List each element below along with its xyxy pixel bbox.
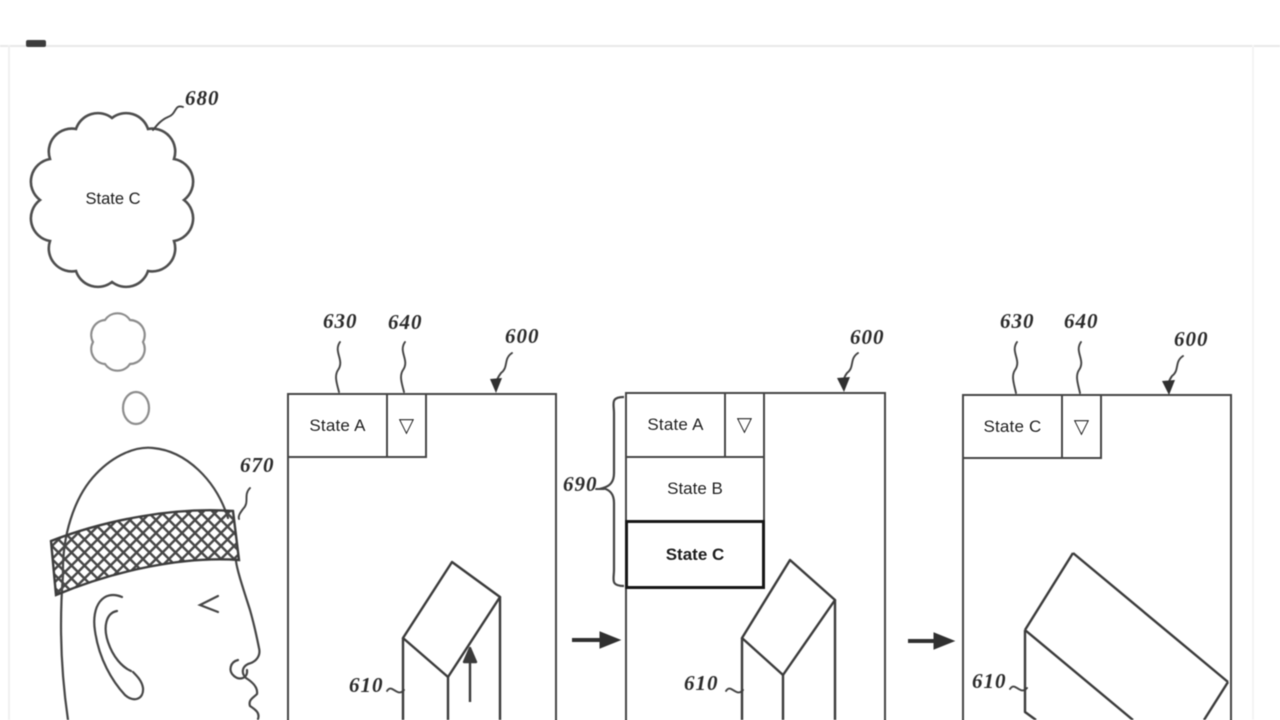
thought-bubble-trail — [91, 313, 149, 424]
dropdown-option-state-c: State C — [625, 520, 765, 589]
ref-label-690: 690 — [563, 472, 598, 497]
ref-label-610-panel3: 610 — [972, 669, 1007, 694]
ear-inner — [106, 611, 131, 671]
page-right-rule — [1252, 45, 1254, 720]
ref-label-640-panel3: 640 — [1064, 309, 1099, 334]
ref-label-640-panel1: 640 — [388, 310, 423, 335]
scan-artifact-dash — [26, 40, 46, 47]
ref-label-610-panel2: 610 — [684, 671, 719, 696]
dropdown-option-state-b: State B — [625, 456, 765, 522]
state-dropdown-panel1: State A ▽ — [287, 393, 427, 458]
state-dropdown-panel2: State A ▽ — [625, 392, 765, 458]
dropdown-button-panel3: ▽ — [1061, 396, 1100, 457]
list-bracket — [603, 397, 624, 586]
state-field-panel3: State C — [964, 396, 1061, 457]
page-left-rule — [8, 45, 10, 720]
state-field-panel2: State A — [627, 394, 724, 456]
page-top-rule — [0, 45, 1280, 47]
ref-label-600-panel3: 600 — [1174, 327, 1209, 352]
bubble-trail-medium — [91, 313, 144, 370]
state-dropdown-panel3: State C ▽ — [962, 394, 1102, 459]
ref-label-630-panel1: 630 — [323, 309, 358, 334]
sensor-headband — [51, 510, 239, 595]
ref-label-680: 680 — [185, 86, 220, 111]
ref-label-600-panel1: 600 — [505, 324, 540, 349]
eye — [200, 596, 218, 612]
ref-label-630-panel3: 630 — [1000, 309, 1035, 334]
state-field-panel1: State A — [289, 395, 386, 456]
ref-label-610-panel1: 610 — [349, 673, 384, 698]
dropdown-button-panel1: ▽ — [386, 395, 425, 456]
ref-label-670: 670 — [240, 453, 275, 478]
thought-bubble-text: State C — [66, 190, 160, 209]
dropdown-button-panel2: ▽ — [724, 394, 763, 456]
ref-label-600-panel2: 600 — [850, 325, 885, 350]
bubble-trail-small — [123, 392, 149, 424]
patent-figure-canvas: State A ▽ State A ▽ State B State C Stat… — [0, 0, 1280, 720]
dropdown-arrow-icon: ▽ — [1074, 417, 1089, 437]
dropdown-arrow-icon: ▽ — [399, 416, 414, 436]
user-head-drawing — [61, 448, 259, 720]
ear-outer — [94, 595, 143, 699]
dropdown-arrow-icon: ▽ — [737, 415, 752, 435]
nose-nostril — [231, 660, 248, 678]
